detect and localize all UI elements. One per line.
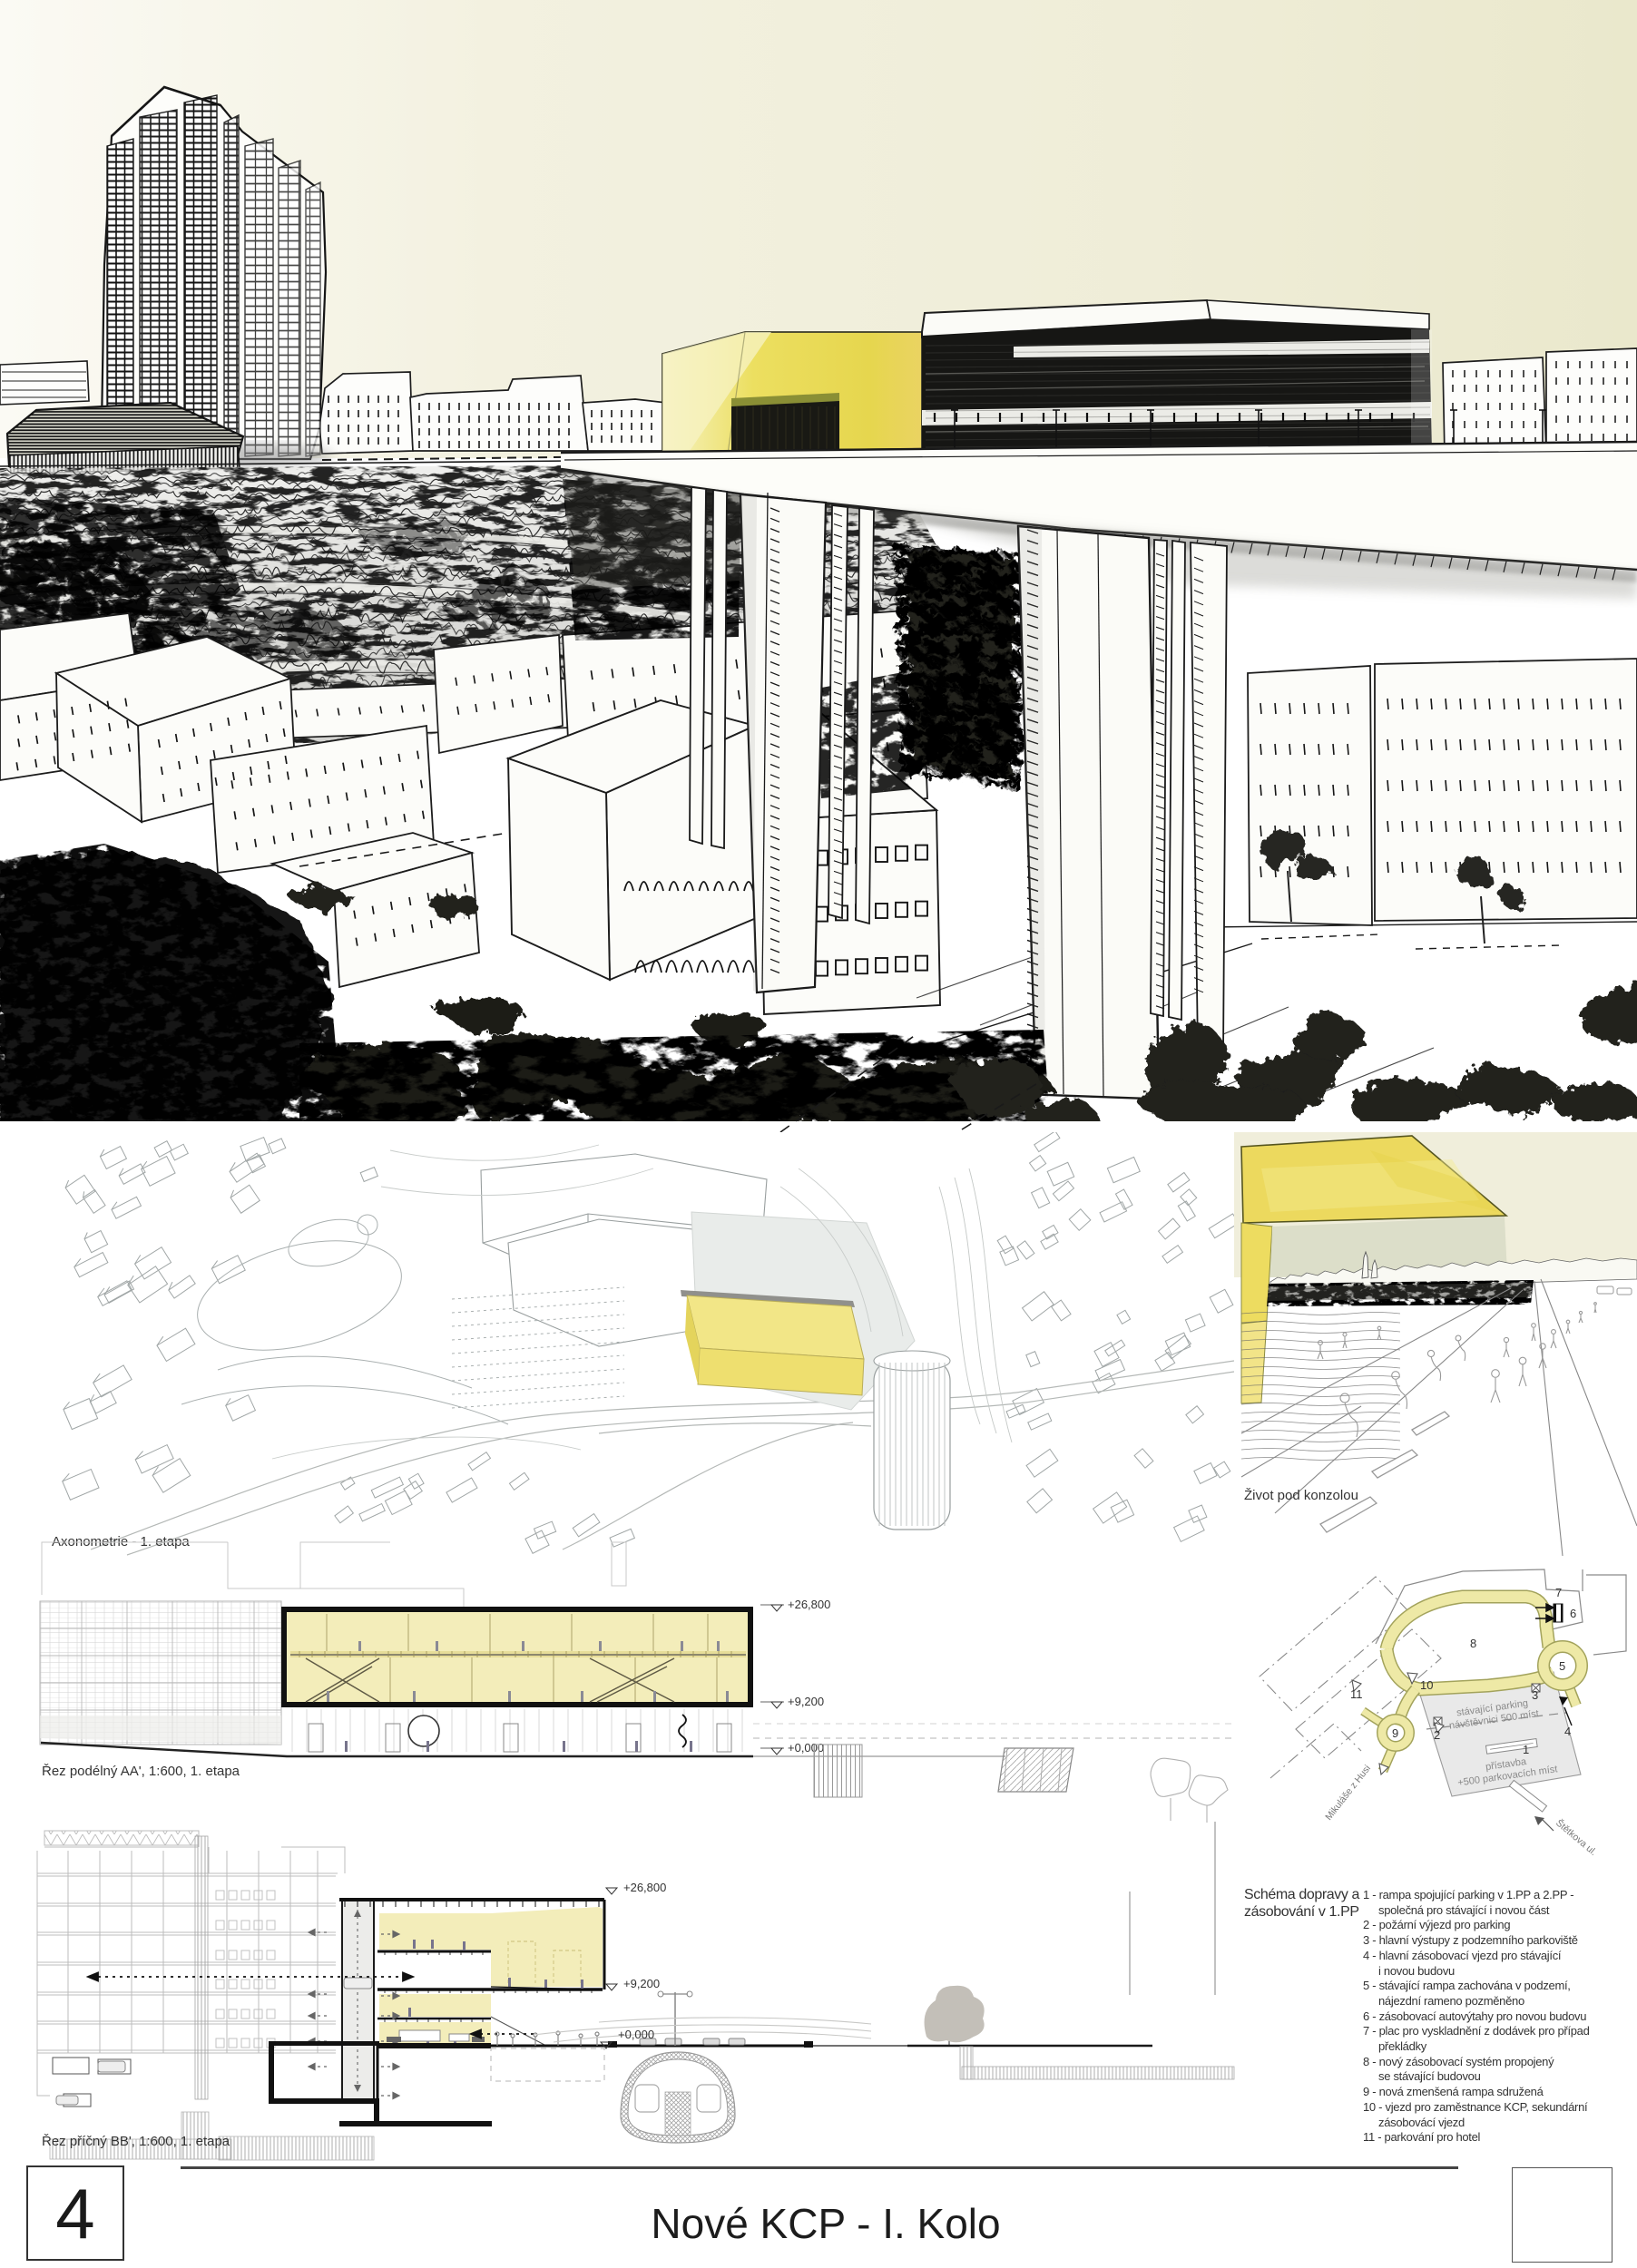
- svg-text:Štětkova ul.: Štětkova ul.: [1554, 1817, 1599, 1858]
- svg-text:+9,200: +9,200: [623, 1977, 660, 1990]
- svg-text:1: 1: [1523, 1743, 1529, 1756]
- svg-text:+9,200: +9,200: [788, 1695, 824, 1708]
- svg-text:10: 10: [1420, 1678, 1433, 1692]
- svg-text:3: 3: [1532, 1688, 1538, 1702]
- svg-text:9: 9: [1392, 1726, 1398, 1740]
- svg-text:2: 2: [1434, 1728, 1440, 1742]
- svg-text:8: 8: [1470, 1637, 1476, 1650]
- svg-text:Řez podélný AA', 1:600, 1. eta: Řez podélný AA', 1:600, 1. etapa: [42, 1764, 240, 1779]
- svg-text:6: 6: [1570, 1607, 1576, 1620]
- svg-text:+26,800: +26,800: [623, 1881, 666, 1894]
- svg-text:Řez příčný BB', 1:600, 1. etap: Řez příčný BB', 1:600, 1. etapa: [42, 2134, 230, 2149]
- svg-text:Mikuláše z Husi: Mikuláše z Husi: [1323, 1763, 1373, 1822]
- svg-text:+26,800: +26,800: [788, 1598, 830, 1611]
- svg-text:+0,000: +0,000: [618, 2028, 654, 2041]
- svg-text:11: 11: [1350, 1687, 1363, 1701]
- svg-text:4: 4: [1564, 1725, 1571, 1738]
- svg-text:7: 7: [1555, 1586, 1562, 1599]
- svg-text:5: 5: [1559, 1659, 1565, 1673]
